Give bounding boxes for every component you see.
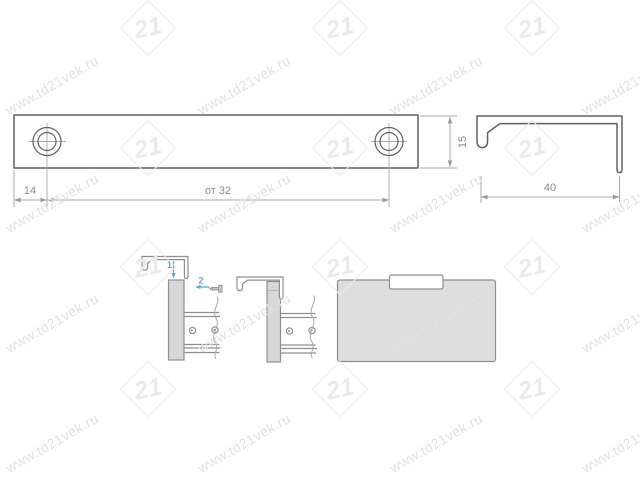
screw-head: [219, 285, 223, 292]
arrow-up: [448, 117, 453, 124]
arrow-right: [613, 195, 620, 200]
step2-marker: 2: [195, 276, 222, 293]
drawer-facade: [338, 280, 496, 362]
dim-ot32-label: от 32: [205, 185, 231, 197]
door-panel-section: [169, 280, 185, 360]
arrow-left: [47, 198, 54, 203]
handle-tab: [390, 275, 444, 289]
dimension-40: 40: [481, 176, 620, 203]
screw-hole-center: [191, 329, 193, 331]
dim-40-label: 40: [544, 182, 556, 194]
mounted-front-view: [338, 275, 496, 362]
handle-profile-section: [477, 116, 622, 173]
dim-15-label: 15: [457, 136, 469, 148]
screw-icon: [210, 285, 223, 292]
technical-drawing: 14 от 32 15: [0, 0, 640, 480]
arrow-left: [481, 195, 488, 200]
cabinet-rail: [281, 296, 318, 359]
step1-marker: 1: [167, 260, 176, 279]
step1-number: 1: [167, 260, 172, 270]
arrow-down: [448, 161, 453, 168]
step2-number: 2: [198, 276, 203, 286]
assembly-step-1: 1 2: [142, 257, 222, 361]
arrow-left: [14, 198, 21, 203]
assembly-step-2: [237, 277, 317, 362]
dimension-14: 14: [14, 170, 47, 207]
arrow-left-head: [195, 285, 201, 289]
arrow-down-head: [172, 273, 176, 279]
drawing-canvas: 14 от 32 15: [0, 0, 640, 480]
screw-shaft: [213, 287, 219, 290]
side-view: 40: [477, 116, 622, 203]
door-panel-section: [267, 282, 281, 363]
dimension-15: 15: [420, 116, 469, 168]
handle-profile-mini: [142, 257, 188, 279]
screw-tip: [210, 287, 213, 290]
cabinet-rail: [184, 297, 221, 360]
dimension-ot32: от 32: [47, 185, 389, 202]
arrow-right: [383, 198, 390, 203]
handle-front-body: [14, 115, 418, 168]
dim-14-label: 14: [24, 185, 36, 197]
arrow-right: [41, 198, 48, 203]
front-view: 14 от 32 15: [14, 115, 469, 207]
screw-hole-center: [288, 330, 290, 332]
